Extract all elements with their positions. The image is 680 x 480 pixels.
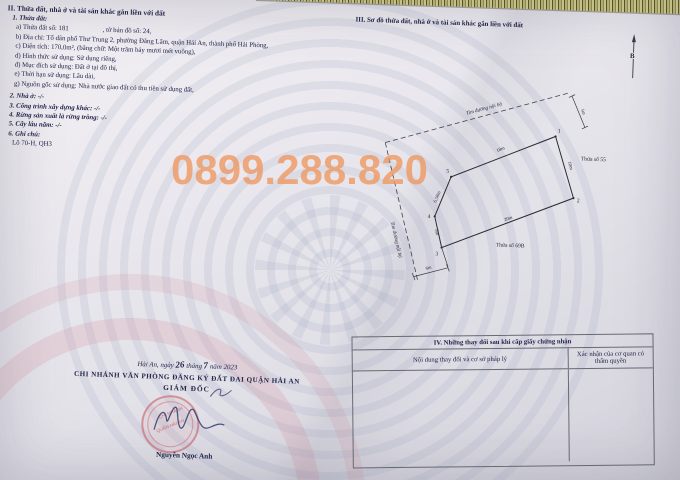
col-header-authority-confirm: Xác nhận của cơ quan có thẩm quyền	[568, 347, 653, 368]
signing-block: Hải An, ngày 26 tháng 7 năm 2023 CHI NHÁ…	[46, 355, 327, 398]
signer-name: Nguyễn Ngọc Anh	[156, 450, 213, 461]
land-certificate-photo: II. Thửa đất, nhà ở và tài sản khác gắn …	[0, 0, 680, 480]
dim-right: 10m	[566, 161, 573, 171]
svg-text:6m: 6m	[425, 264, 432, 270]
vertex-5: 5	[446, 169, 449, 175]
vertex-1: 1	[558, 129, 561, 135]
dim-left-upper: 6.58m	[433, 190, 442, 203]
road-top-label: Tim đường nội bộ	[466, 101, 504, 116]
handwritten-day: 26	[175, 359, 185, 370]
empty-confirm-cell	[568, 368, 653, 461]
north-label: B	[630, 52, 635, 60]
neighbor-parcel-69b: Thửa số 69B	[496, 241, 525, 249]
section-4-changes-table: IV. Những thay đổi sau khi cấp giấy chứn…	[351, 333, 654, 468]
director-signature	[151, 400, 232, 445]
dim-road-bottom: 6m	[412, 247, 450, 282]
road-left-label: Tim đường nội bộ	[389, 221, 403, 259]
printed-content: II. Thửa đất, nhà ở và tài sản khác gắn …	[0, 0, 680, 480]
vertex-2: 2	[577, 198, 580, 204]
signer-name-wrap: Nguyễn Ngọc Anh	[94, 442, 275, 466]
dim-top: 18m	[496, 146, 506, 154]
svg-text:5m: 5m	[580, 108, 587, 116]
neighbor-parcel-55: Thửa số 55	[581, 155, 607, 163]
col-header-change-content: Nội dung thay đổi và cơ sở pháp lý	[353, 348, 569, 370]
section-2-parcel-info: II. Thửa đất, nhà ở và tài sản khác gắn …	[3, 2, 360, 160]
dim-road-right: 5m	[568, 94, 589, 129]
handwritten-month: 7	[203, 360, 208, 370]
empty-change-cell	[353, 369, 570, 463]
road-centerline-top	[385, 87, 569, 149]
dim-left-lower: 5m	[433, 229, 439, 236]
section-3-title: III. Sơ đồ thửa đất, nhà ở và tài sản kh…	[355, 16, 665, 34]
vertex-3: 3	[435, 251, 438, 257]
vertex-4: 4	[428, 214, 431, 220]
certificate-paper: II. Thửa đất, nhà ở và tài sản khác gắn …	[0, 0, 680, 480]
parcel-outline	[434, 132, 576, 252]
dim-bottom: 20m	[504, 215, 514, 223]
phone-number-watermark: 0899.288.820	[171, 146, 428, 194]
north-arrow-icon: B	[629, 34, 636, 78]
role-flourish	[208, 386, 234, 401]
